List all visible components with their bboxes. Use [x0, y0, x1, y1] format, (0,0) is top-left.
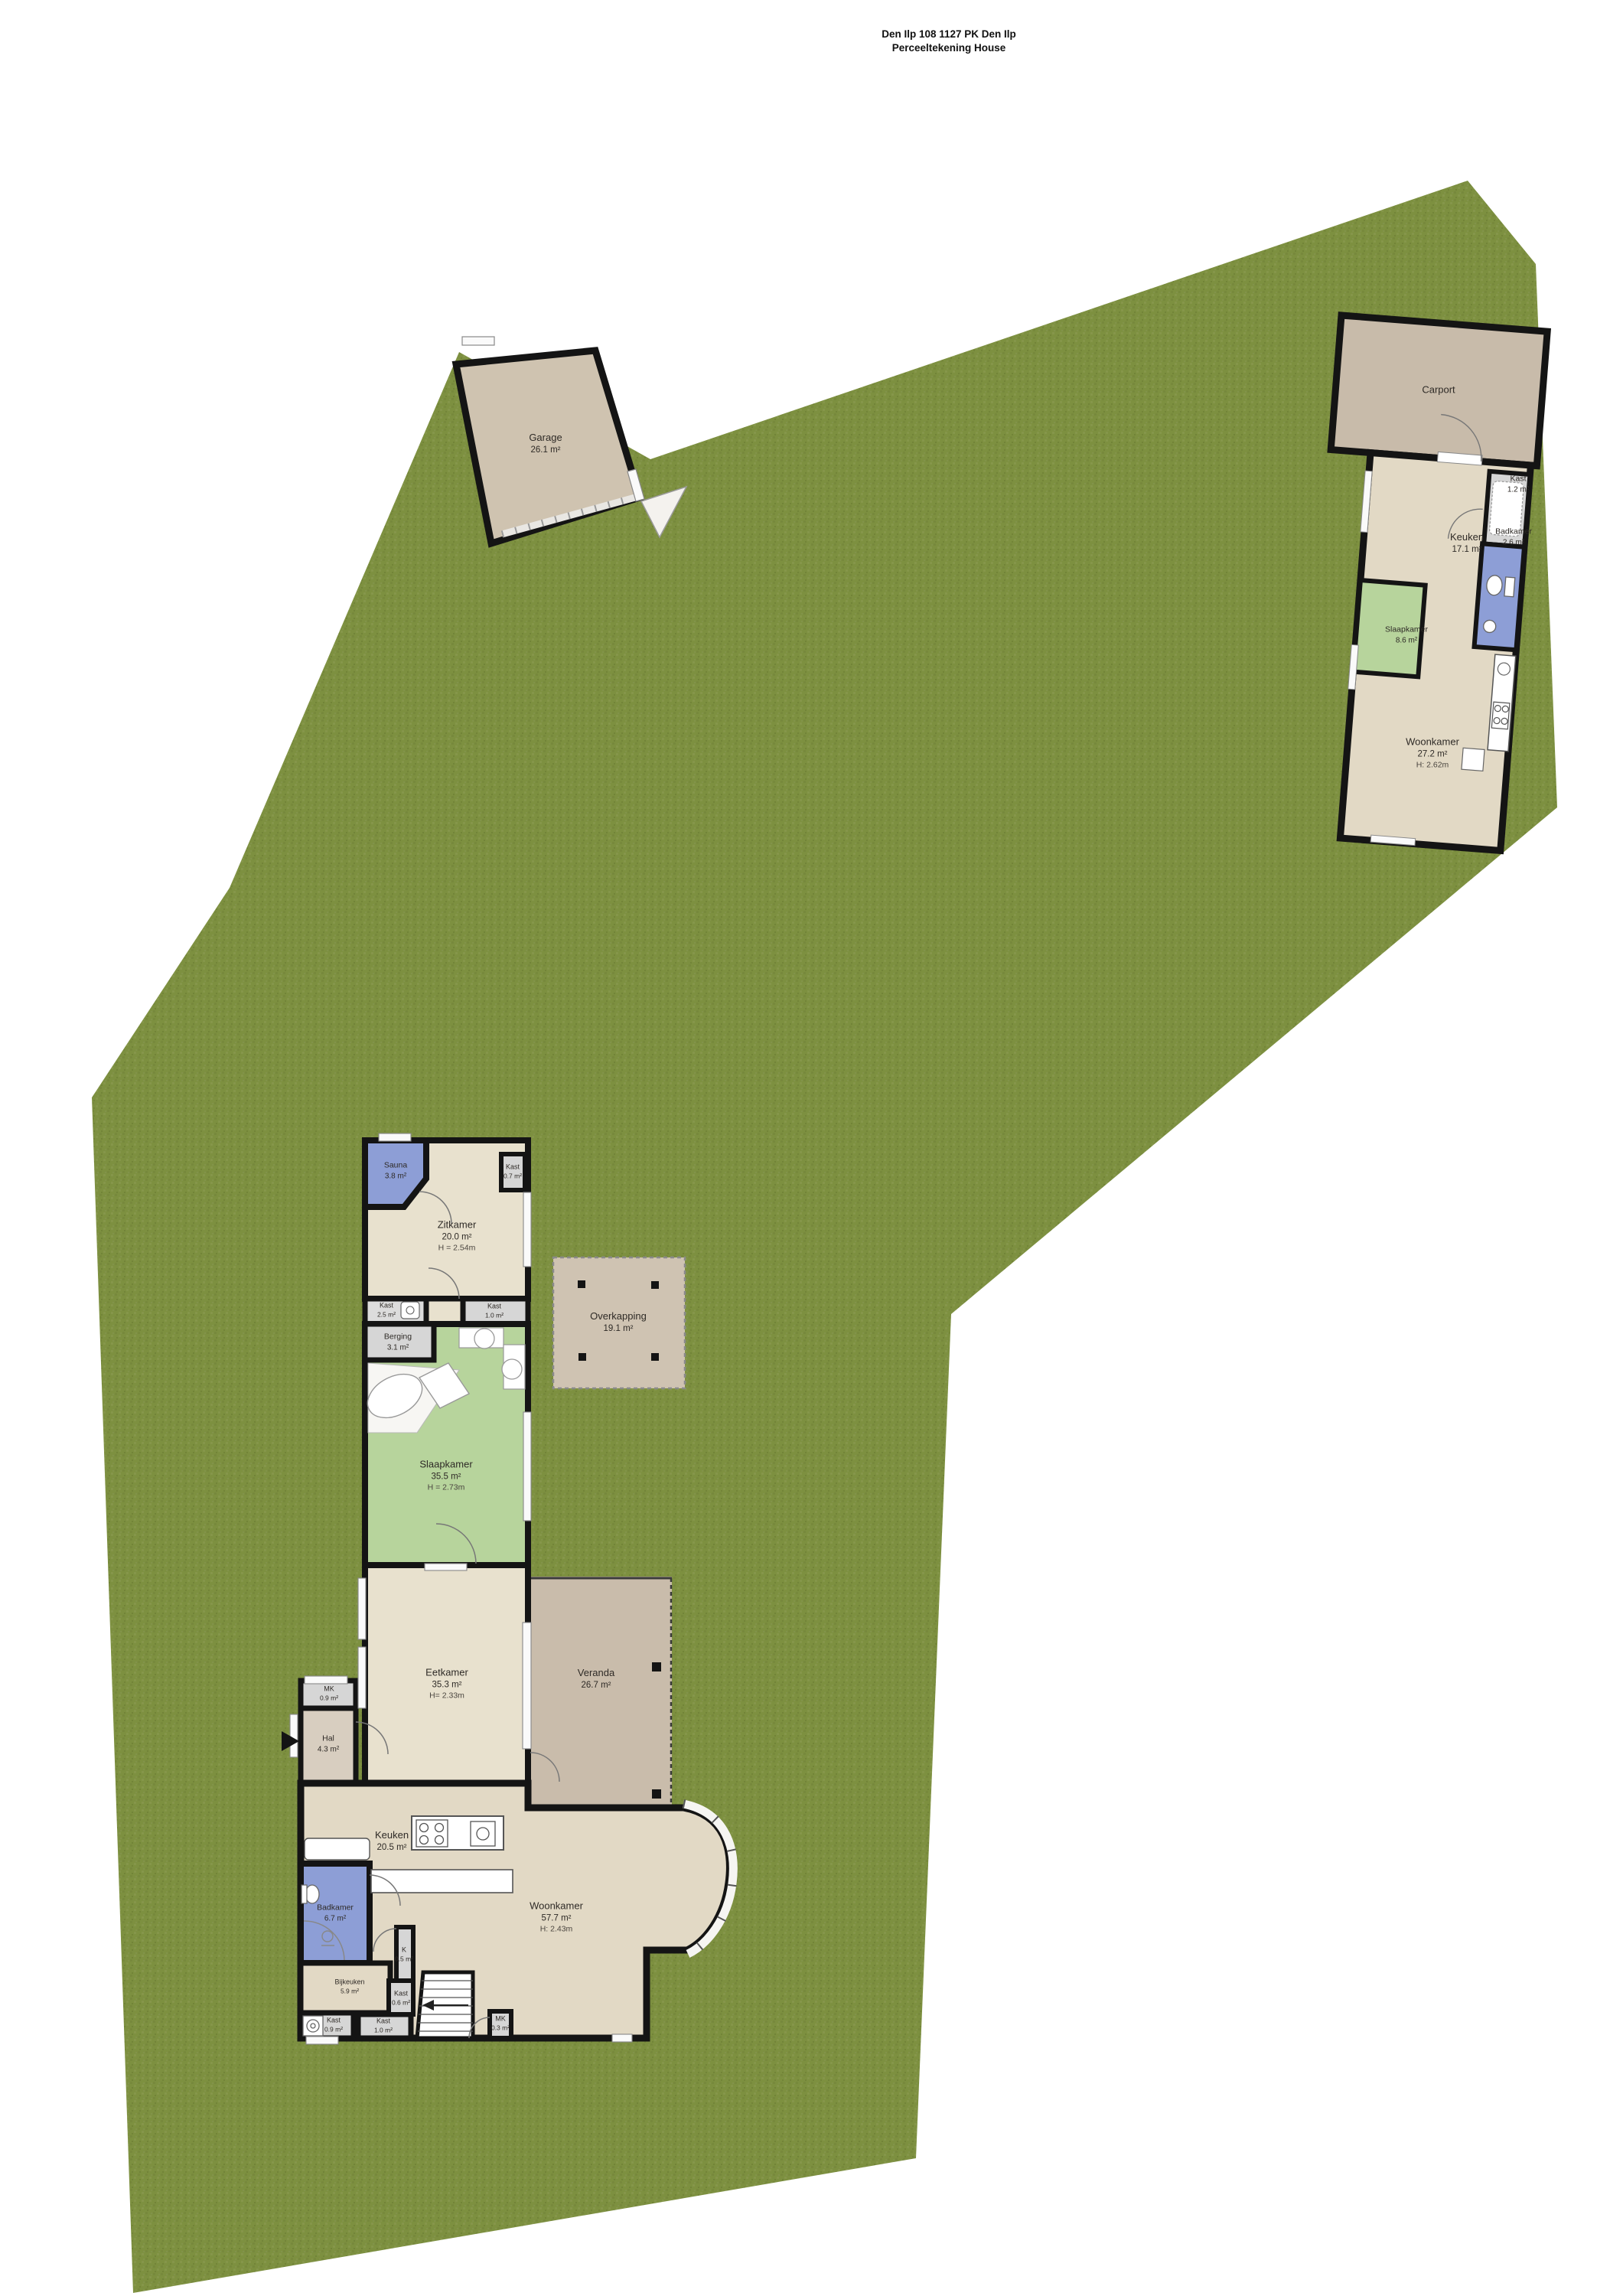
canopy-post-icon — [578, 1353, 586, 1361]
appliance-icon — [1462, 748, 1484, 771]
canopy-post-icon — [651, 1281, 659, 1289]
stove-icon — [416, 1820, 448, 1847]
chair-icon — [474, 1329, 494, 1349]
toilet-icon — [305, 1885, 319, 1903]
eetkamer-room — [365, 1565, 528, 1783]
veranda-post-icon — [652, 1789, 661, 1799]
mk-09-room — [301, 1681, 356, 1708]
washbasin-icon — [1483, 620, 1496, 633]
toilet-icon — [1504, 577, 1515, 597]
veranda-structure — [528, 1577, 672, 1808]
washbasin-icon — [401, 1302, 419, 1319]
veranda-post-icon — [652, 1662, 661, 1671]
washing-machine-icon — [303, 2016, 323, 2036]
plan-title: Den Ilp 108 1127 PK Den Ilp Perceelteken… — [882, 28, 1016, 55]
canopy-post-icon — [578, 1280, 585, 1288]
plan-drawing — [0, 0, 1623, 2296]
guest-closet-icon — [1489, 481, 1524, 536]
kast-05-room — [396, 1927, 413, 1981]
kast-10b-room — [358, 2014, 411, 2038]
badkamer-room — [301, 1864, 370, 1963]
kitchen-counter-icon — [371, 1870, 513, 1893]
guest-badkamer-room — [1475, 543, 1524, 650]
kast-10-room — [463, 1299, 528, 1324]
garage-structure — [456, 337, 686, 543]
berging-room — [365, 1324, 434, 1360]
guest-slaapkamer-room — [1354, 580, 1426, 677]
site-plan: Den Ilp 108 1127 PK Den Ilp Perceelteken… — [0, 0, 1623, 2296]
mk-03-room — [490, 2011, 511, 2038]
kast-07-room — [501, 1154, 525, 1190]
sink-icon — [471, 1821, 495, 1846]
bijkeuken-room — [301, 1963, 390, 2013]
garage-window-icon — [462, 337, 494, 345]
stove-icon — [1491, 702, 1510, 729]
cupboard-icon — [305, 1838, 370, 1860]
chair-icon — [502, 1359, 522, 1379]
canopy-post-icon — [651, 1353, 659, 1361]
overkapping-structure — [553, 1257, 685, 1388]
hal-room — [301, 1708, 356, 1783]
toilet-icon — [301, 1885, 307, 1903]
kast-06-room — [389, 1981, 413, 2014]
stairs-icon — [417, 1972, 473, 2038]
